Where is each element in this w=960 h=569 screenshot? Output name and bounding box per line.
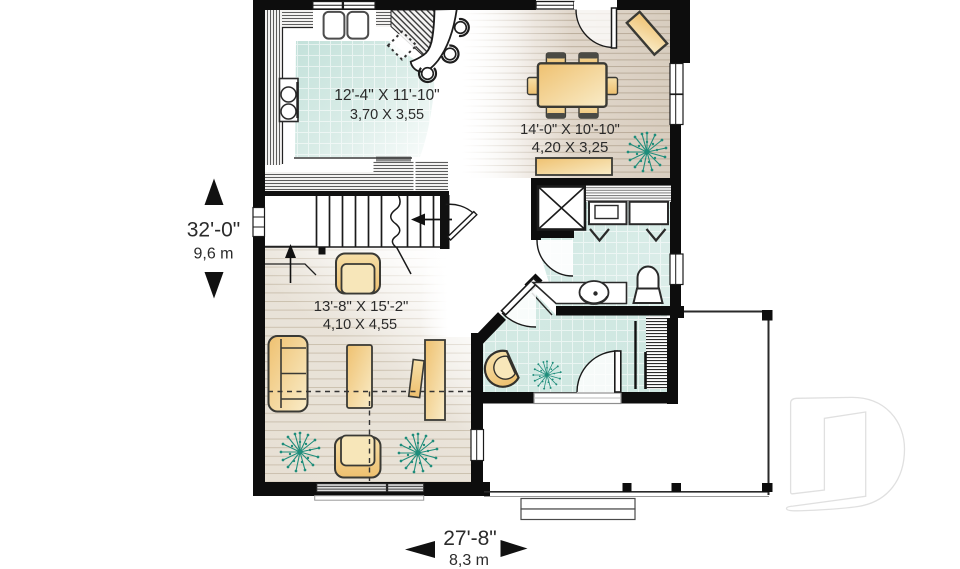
svg-text:12'-4" X 11'-10": 12'-4" X 11'-10" [334, 87, 439, 104]
svg-text:32'-0": 32'-0" [187, 219, 241, 242]
svg-text:13'-8" X 15'-2": 13'-8" X 15'-2" [314, 298, 409, 315]
svg-text:8,3 m: 8,3 m [449, 552, 489, 569]
svg-text:4,10 X 4,55: 4,10 X 4,55 [323, 317, 397, 333]
svg-text:9,6 m: 9,6 m [193, 246, 233, 263]
svg-text:14'-0" X 10'-10": 14'-0" X 10'-10" [520, 122, 620, 138]
svg-text:27'-8": 27'-8" [443, 527, 497, 550]
svg-text:3,70 X 3,55: 3,70 X 3,55 [350, 107, 424, 123]
svg-text:4,20 X 3,25: 4,20 X 3,25 [532, 139, 609, 156]
